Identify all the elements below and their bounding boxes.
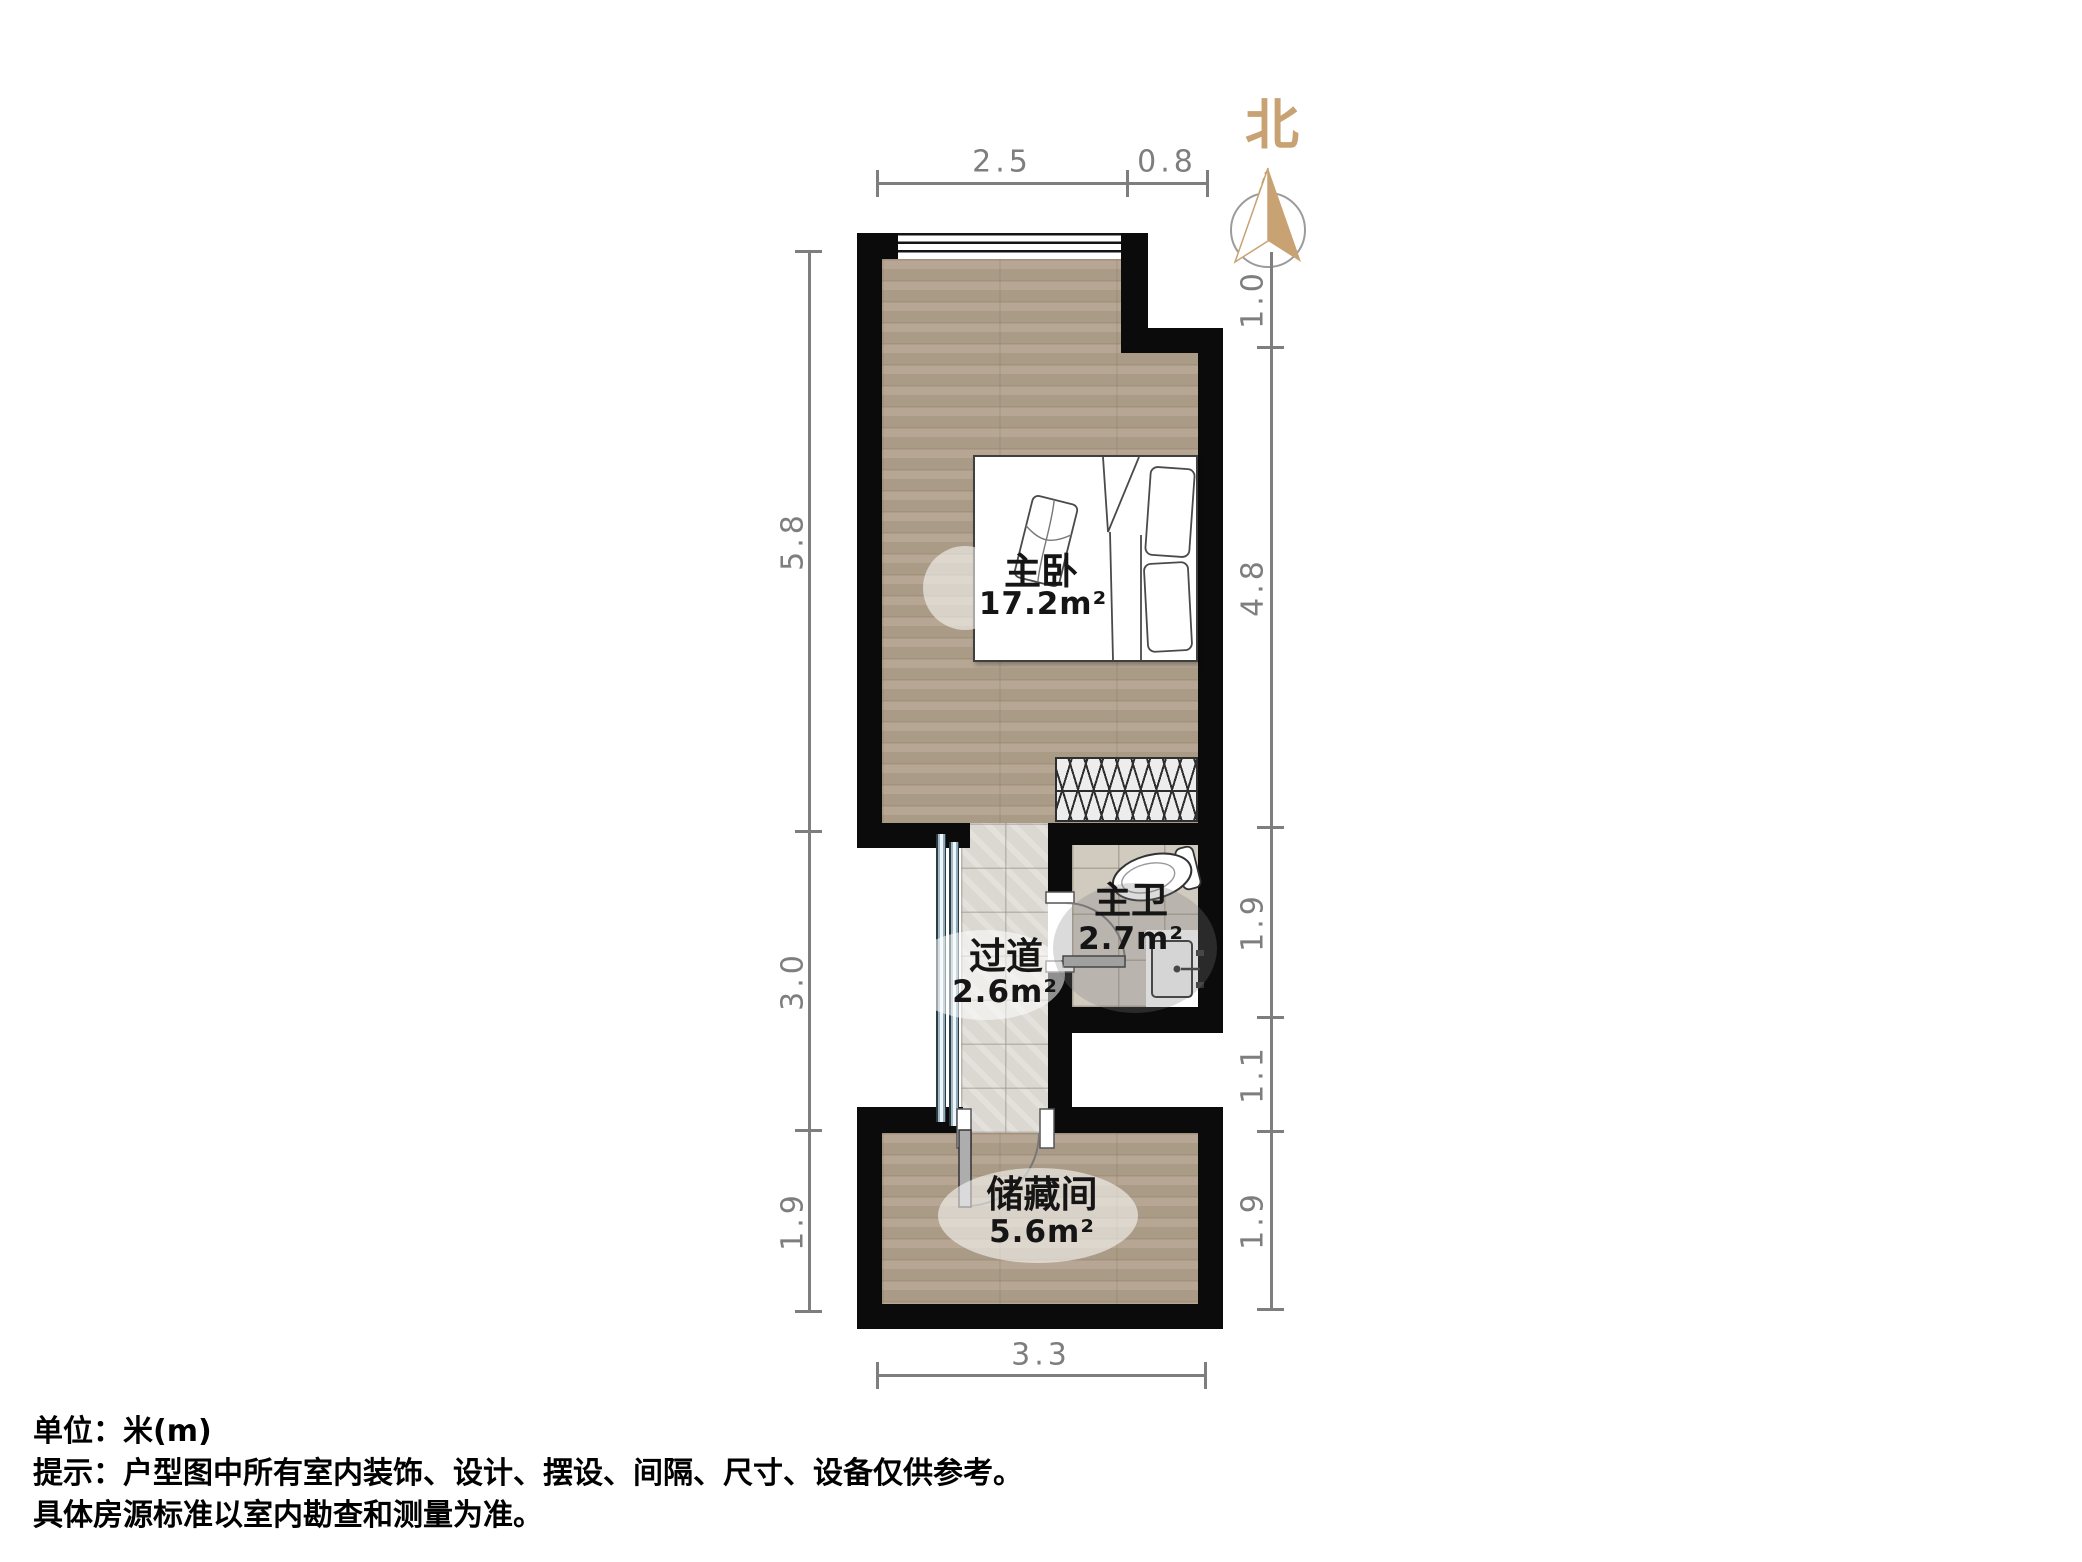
dim-label-top-2: 0.8: [1137, 145, 1197, 180]
dim-tick: [876, 1362, 879, 1389]
compass-circle: [1231, 193, 1305, 267]
compass-needle-west: [1235, 168, 1268, 262]
dim-line-right: [1270, 252, 1273, 1310]
room-label-corridor: 过道: [969, 926, 1043, 980]
wall-storage-left: [857, 1107, 882, 1329]
dim-label-right-2: 4.8: [1236, 557, 1271, 617]
dim-tick: [1126, 170, 1129, 197]
dim-label-right-4: 1.1: [1236, 1044, 1271, 1104]
footer-notice-line2: 具体房源标准以室内勘查和测量为准。: [33, 1490, 543, 1534]
dim-line-left: [808, 251, 811, 1311]
dim-tick: [795, 250, 822, 253]
dim-tick: [1204, 1362, 1207, 1389]
compass-dashed-line: [1238, 172, 1266, 260]
room-area-storage: 5.6m²: [989, 1214, 1095, 1250]
dim-tick: [1257, 1130, 1284, 1133]
wall-storage-top-right: [1048, 1107, 1223, 1133]
dim-tick: [1257, 346, 1284, 349]
dim-label-left-1: 5.8: [776, 511, 811, 571]
wall-bath-top: [1048, 823, 1223, 845]
dim-tick: [1206, 170, 1209, 197]
footer-notice-line1: 提示：户型图中所有室内装饰、设计、摆设、间隔、尺寸、设备仅供参考。: [33, 1448, 1023, 1492]
dim-label-bottom-1: 3.3: [1011, 1338, 1071, 1373]
floorplan-canvas: 主卧 17.2m² 过道 2.6m² 主卫 2.7m² 储藏间 5.6m² 北 …: [0, 0, 2082, 1562]
dim-label-right-1: 1.0: [1236, 269, 1271, 329]
room-label-master-bath: 主卫: [1094, 870, 1168, 924]
compass-icon: [1231, 168, 1305, 267]
wall-left: [857, 233, 882, 848]
dim-tick: [795, 1129, 822, 1132]
dim-tick: [876, 170, 879, 197]
north-label: 北: [1245, 81, 1299, 160]
dim-line-bottom: [877, 1374, 1207, 1377]
dim-label-top-1: 2.5: [972, 145, 1032, 180]
dim-tick: [795, 1310, 822, 1313]
dim-tick: [795, 830, 822, 833]
wardrobe: [1055, 757, 1198, 822]
wall-storage-right: [1198, 1107, 1223, 1329]
dim-line-top: [877, 182, 1207, 185]
dim-label-right-5: 1.9: [1236, 1190, 1271, 1250]
wardrobe-rail: [1057, 790, 1196, 793]
room-area-master-bath: 2.7m²: [1078, 921, 1184, 957]
dim-label-left-3: 1.9: [776, 1191, 811, 1251]
dim-tick: [1257, 1308, 1284, 1311]
dim-tick: [1257, 826, 1284, 829]
dim-label-left-2: 3.0: [776, 951, 811, 1011]
wall-top-left-stub: [857, 233, 898, 259]
dim-label-right-3: 1.9: [1236, 892, 1271, 952]
room-label-storage: 储藏间: [987, 1164, 1098, 1218]
dim-tick: [1257, 1016, 1284, 1019]
wall-storage-bottom: [857, 1304, 1223, 1329]
bedroom-window: [898, 233, 1121, 259]
compass-needle-east: [1268, 168, 1301, 262]
footer-unit-line: 单位：米(m): [33, 1406, 212, 1450]
room-area-master-bedroom: 17.2m²: [979, 586, 1107, 622]
room-area-corridor: 2.6m²: [952, 974, 1058, 1010]
